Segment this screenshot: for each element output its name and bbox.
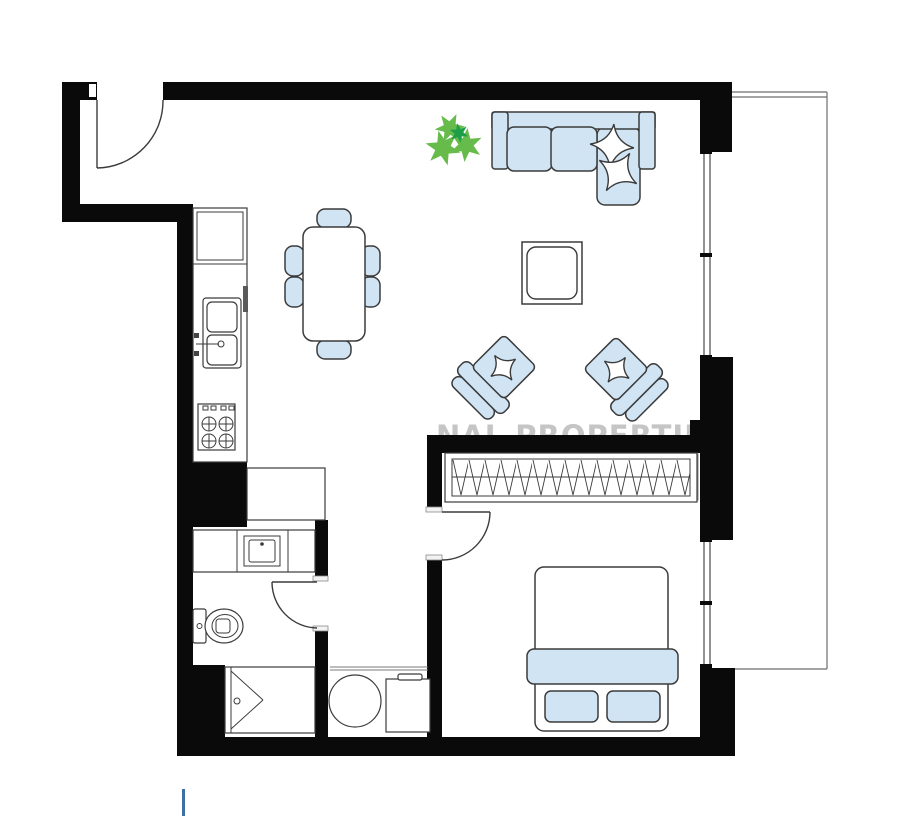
- dining-chair: [317, 209, 351, 228]
- laundry-unit: [386, 679, 430, 732]
- entrance-jamb-right: [156, 84, 163, 97]
- wall-kitchen-south-block: [177, 462, 247, 527]
- wall-bath-east-upper: [315, 520, 328, 578]
- bedroom-window: [700, 538, 712, 668]
- wall-bottom: [177, 737, 735, 756]
- dining-chair: [285, 246, 304, 276]
- wall-step: [62, 204, 193, 222]
- stove: [198, 404, 235, 450]
- wall-right-mid: [700, 357, 733, 540]
- shower: [225, 667, 315, 733]
- faucet-handle: [194, 351, 199, 356]
- wardrobe: [445, 453, 697, 502]
- bedroom-door: [426, 507, 490, 560]
- kitchen-lower-cabinet: [247, 468, 325, 520]
- dining-chair: [285, 277, 304, 307]
- living-window: [700, 150, 712, 359]
- armchair-right: [577, 330, 674, 427]
- wall-top-main: [163, 82, 730, 100]
- bathroom-door: [272, 576, 328, 631]
- laundry-counter: [330, 667, 428, 670]
- laundry-unit-handle: [398, 674, 422, 680]
- wall-right-bottom: [700, 668, 735, 756]
- counter-handle: [243, 286, 248, 312]
- faucet-handle: [194, 333, 199, 338]
- armchair-left: [446, 328, 543, 425]
- wall-right-jut: [690, 420, 700, 445]
- entrance-door: [97, 100, 163, 168]
- corner-sofa: [492, 112, 655, 205]
- sofa-armrest: [492, 112, 508, 169]
- blue-tick-mark: [182, 789, 185, 816]
- sofa-cushion: [551, 127, 597, 171]
- laundry-nook: [329, 667, 430, 732]
- dining-set: [285, 209, 380, 359]
- wall-living-bedroom-divider: [427, 435, 702, 453]
- dining-table: [303, 227, 365, 341]
- wall-right-top: [700, 82, 732, 152]
- entrance-jamb-left: [89, 84, 96, 97]
- toilet: [193, 609, 243, 643]
- wall-bath-east-lower: [315, 630, 328, 740]
- washing-machine: [329, 675, 381, 727]
- bed-pillow: [545, 691, 598, 722]
- dining-chair: [317, 340, 351, 359]
- bed-blanket: [527, 649, 678, 684]
- plant: [422, 108, 488, 168]
- wall-left: [62, 82, 80, 222]
- wall-kitchen-west: [177, 222, 193, 467]
- sofa-armrest: [639, 112, 655, 169]
- sofa-cushion: [507, 127, 552, 171]
- double-bed: [527, 567, 678, 731]
- bed-pillow: [607, 691, 660, 722]
- floor-plan-page: NAL PROPERTIES: [0, 0, 922, 816]
- floor-plan: NAL PROPERTIES: [0, 0, 922, 816]
- bathroom-vanity: [193, 530, 315, 572]
- coffee-table: [522, 242, 582, 304]
